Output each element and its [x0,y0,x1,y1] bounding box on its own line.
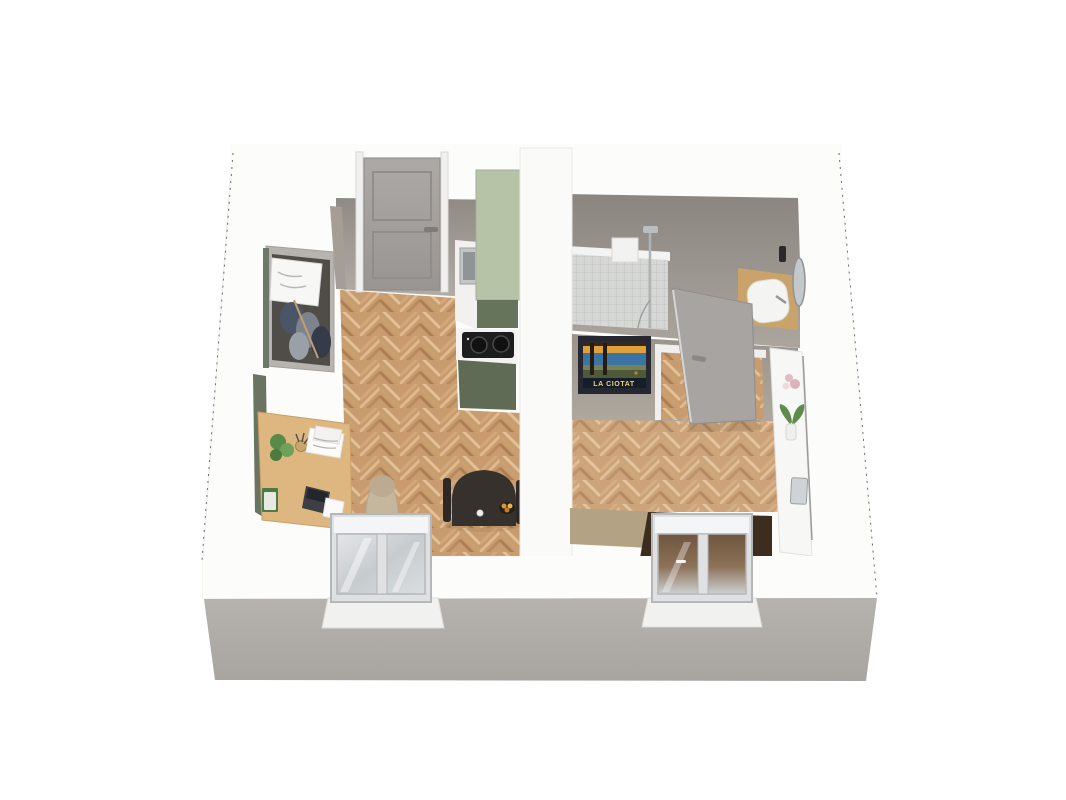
entrance-door [356,152,448,292]
cooktop-burner [493,336,509,352]
kitchen-cabinet-olive-band [477,300,518,328]
shower-head [643,226,658,233]
floorplan-render: LA CIOTAT [0,0,1066,800]
flower [783,383,790,390]
window-left [331,514,431,602]
door-jamb [356,152,363,292]
cup [477,510,483,516]
round-mirror [793,258,805,306]
poster-detail [634,371,637,374]
shower-niche-box [612,238,638,262]
kitchen-sink-basin [463,252,475,280]
cooktop-dot [467,338,469,340]
dining-table [452,470,516,526]
window-header [334,517,428,533]
papers [306,426,344,458]
wardrobe [263,246,334,372]
fruit [505,508,510,513]
poster-title: LA CIOTAT [593,381,635,388]
bottle [779,246,786,262]
window-mullion [377,534,387,594]
door-jamb [441,152,448,292]
dining-chair [443,478,451,522]
door-handle [424,227,438,232]
induction-cooktop [462,332,514,358]
floorplan-svg: LA CIOTAT [0,0,1066,800]
front-wall-face [204,598,877,681]
kitchen-base-olive [458,360,516,410]
wardrobe-side-olive [263,248,269,368]
metal-tray [790,478,807,505]
plant-foliage [270,449,282,461]
window-header [655,517,749,533]
poster-tree-trunk [590,343,594,375]
kitchen-tall-cabinet-sage [476,170,522,300]
entrance-door-leaf [364,158,440,290]
cooktop-burner [471,337,487,353]
window-mullion [698,534,708,594]
shower-tiled-wall [568,254,668,330]
central-partition [520,148,572,600]
plant-foliage [280,443,294,457]
clothes-item [289,332,309,360]
front-wall [203,556,877,681]
plant-vase [786,424,796,440]
partition-wall [520,148,572,600]
front-wall-top-band [203,556,877,598]
window-right [652,514,752,602]
flower [790,379,800,389]
travel-poster: LA CIOTAT [578,336,651,394]
book [264,492,276,510]
poster-tree-trunk [603,343,607,375]
wardrobe-shelf [270,258,322,306]
doorway-jamb [655,348,661,420]
fruit-bowl [499,502,515,514]
chair-back [369,475,395,497]
clothes-item [311,326,331,358]
fruit [508,504,513,509]
fruit [502,504,507,509]
books [262,488,278,512]
